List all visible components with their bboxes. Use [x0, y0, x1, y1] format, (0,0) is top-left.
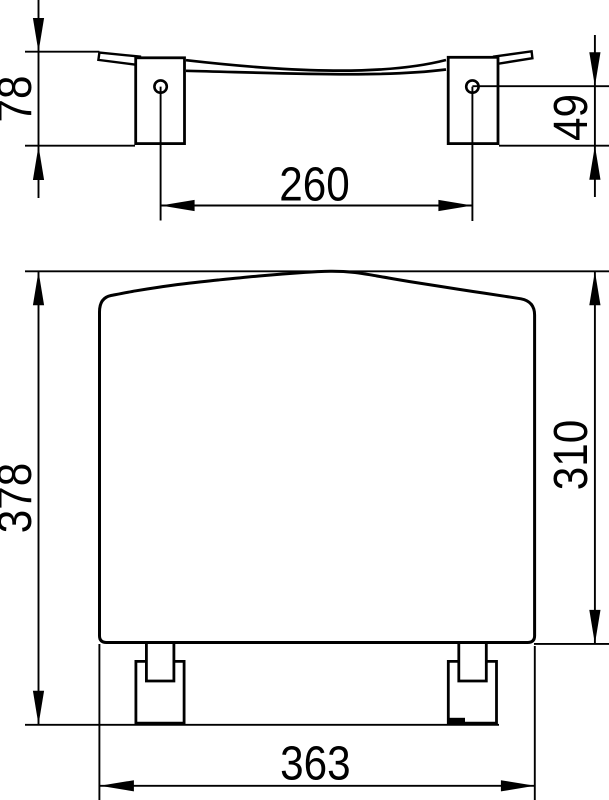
svg-text:363: 363: [280, 736, 350, 790]
svg-text:310: 310: [543, 420, 597, 490]
svg-text:78: 78: [0, 76, 42, 123]
svg-text:378: 378: [0, 463, 42, 533]
svg-text:260: 260: [279, 157, 349, 211]
svg-text:49: 49: [543, 94, 597, 141]
